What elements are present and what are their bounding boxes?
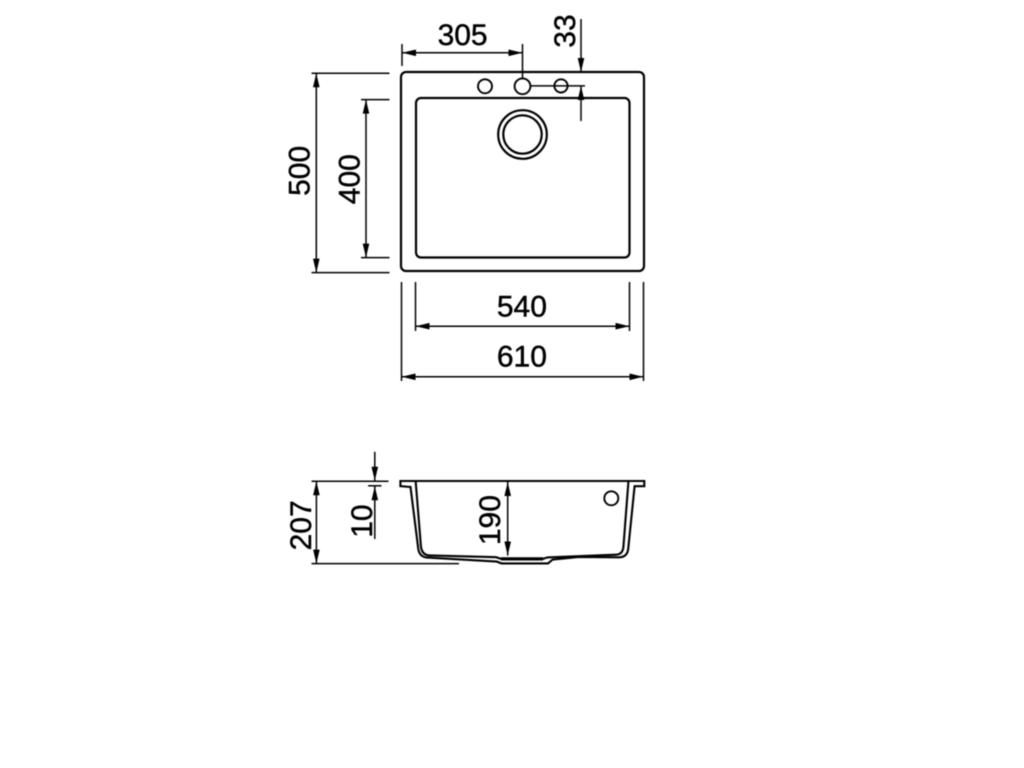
svg-text:400: 400 — [334, 154, 367, 204]
svg-text:33: 33 — [549, 14, 582, 47]
svg-text:207: 207 — [285, 500, 318, 550]
svg-text:10: 10 — [346, 504, 379, 537]
svg-text:610: 610 — [497, 341, 547, 374]
svg-text:190: 190 — [474, 495, 507, 545]
svg-text:305: 305 — [438, 19, 488, 52]
svg-text:540: 540 — [497, 290, 547, 323]
svg-text:500: 500 — [284, 146, 317, 196]
